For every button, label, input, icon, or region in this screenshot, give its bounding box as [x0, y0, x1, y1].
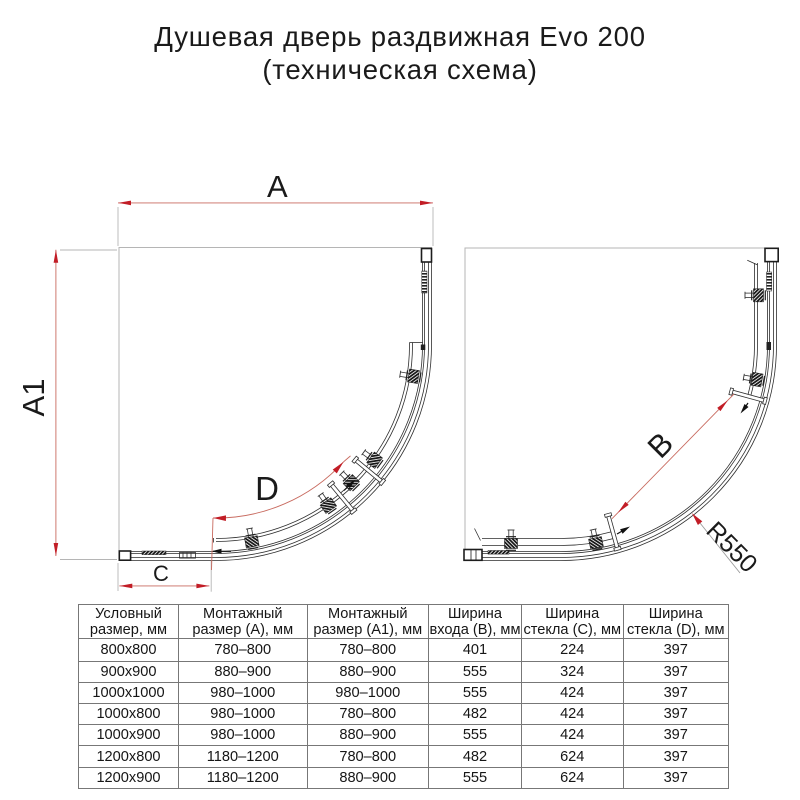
svg-text:A: A: [267, 169, 288, 204]
svg-text:B: B: [641, 425, 680, 464]
svg-text:D: D: [255, 470, 279, 507]
svg-text:R550: R550: [701, 516, 763, 578]
svg-text:C: C: [153, 561, 169, 586]
svg-text:A1: A1: [16, 379, 51, 417]
